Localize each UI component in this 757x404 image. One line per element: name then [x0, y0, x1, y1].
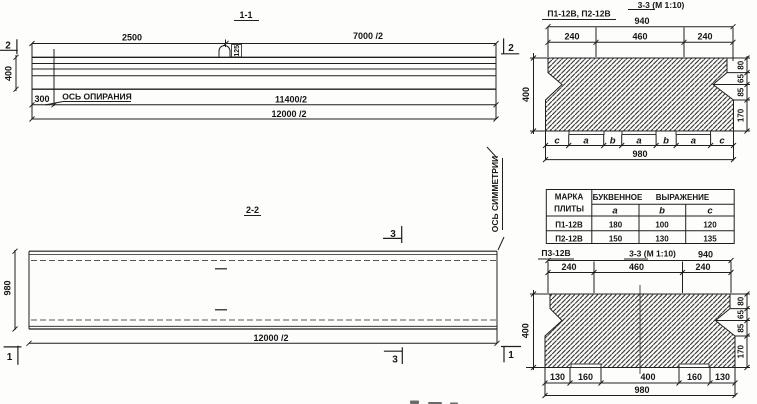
svg-text:80: 80: [737, 60, 746, 69]
svg-text:940: 940: [634, 16, 649, 26]
svg-text:300: 300: [34, 94, 49, 104]
svg-text:2-2: 2-2: [246, 205, 259, 215]
svg-text:240: 240: [695, 262, 710, 272]
svg-text:b: b: [663, 136, 669, 147]
svg-text:ПЛИТЫ: ПЛИТЫ: [554, 205, 584, 214]
svg-text:12000 /2: 12000 /2: [271, 109, 306, 119]
svg-text:1: 1: [7, 352, 13, 363]
svg-text:980: 980: [3, 280, 13, 295]
svg-text:1-1: 1-1: [239, 10, 252, 20]
svg-text:2: 2: [508, 43, 514, 54]
svg-text:b: b: [610, 136, 616, 147]
svg-text:П1-12В, П2-12В: П1-12В, П2-12В: [547, 9, 610, 19]
svg-text:a: a: [691, 136, 696, 147]
svg-text:460: 460: [632, 32, 647, 42]
svg-text:b: b: [659, 206, 665, 217]
svg-text:ВЫРАЖЕНИЕ: ВЫРАЖЕНИЕ: [656, 193, 710, 202]
svg-text:80: 80: [737, 296, 746, 305]
svg-text:3: 3: [392, 355, 398, 366]
svg-text:120: 120: [703, 221, 717, 230]
svg-text:a: a: [583, 136, 588, 147]
svg-text:65: 65: [737, 310, 746, 319]
svg-text:940: 940: [698, 250, 713, 260]
svg-text:2500: 2500: [122, 32, 142, 42]
svg-text:400: 400: [521, 87, 531, 102]
svg-text:c: c: [554, 136, 560, 147]
svg-text:БУКВЕННОЕ: БУКВЕННОЕ: [593, 193, 643, 202]
svg-text:3: 3: [390, 229, 396, 240]
svg-text:980: 980: [634, 385, 649, 395]
svg-text:c: c: [707, 206, 713, 217]
svg-text:100: 100: [655, 221, 669, 230]
svg-text:11400/2: 11400/2: [275, 94, 307, 104]
svg-text:130: 130: [550, 372, 565, 382]
svg-text:П3-12В: П3-12В: [541, 248, 570, 258]
svg-text:85: 85: [737, 87, 746, 96]
svg-text:65: 65: [737, 74, 746, 83]
svg-text:240: 240: [561, 262, 576, 272]
svg-text:a: a: [636, 136, 641, 147]
svg-text:240: 240: [564, 32, 579, 42]
svg-text:400: 400: [4, 66, 14, 81]
svg-text:7000 /2: 7000 /2: [353, 31, 383, 41]
svg-text:130: 130: [715, 372, 730, 382]
svg-text:ОСЬ ОПИРАНИЯ: ОСЬ ОПИРАНИЯ: [62, 92, 131, 102]
svg-text:c: c: [719, 136, 725, 147]
svg-text:П1-12В: П1-12В: [555, 221, 583, 230]
svg-text:460: 460: [629, 262, 644, 272]
svg-text:240: 240: [697, 32, 712, 42]
svg-text:12000 /2: 12000 /2: [253, 333, 288, 343]
svg-text:160: 160: [687, 372, 702, 382]
svg-text:3-3 (М 1:10): 3-3 (М 1:10): [638, 0, 685, 10]
svg-text:170: 170: [737, 108, 746, 122]
svg-text:160: 160: [578, 372, 593, 382]
svg-text:400: 400: [640, 372, 655, 382]
svg-text:1: 1: [508, 350, 514, 361]
svg-text:2: 2: [5, 41, 11, 52]
svg-text:400: 400: [521, 323, 531, 338]
svg-text:125: 125: [234, 45, 241, 57]
svg-text:130: 130: [655, 235, 669, 244]
svg-text:85: 85: [737, 323, 746, 332]
svg-text:980: 980: [632, 149, 647, 159]
svg-text:П2-12В: П2-12В: [555, 235, 583, 244]
svg-text:a: a: [612, 206, 617, 217]
svg-text:ОСЬ СИММЕТРИИ: ОСЬ СИММЕТРИИ: [490, 156, 500, 232]
svg-text:МАРКА: МАРКА: [555, 193, 584, 202]
svg-text:180: 180: [609, 221, 623, 230]
svg-text:3-3 (М 1:10): 3-3 (М 1:10): [629, 249, 676, 259]
svg-text:150: 150: [609, 235, 623, 244]
svg-text:135: 135: [703, 235, 717, 244]
svg-text:170: 170: [737, 344, 746, 358]
